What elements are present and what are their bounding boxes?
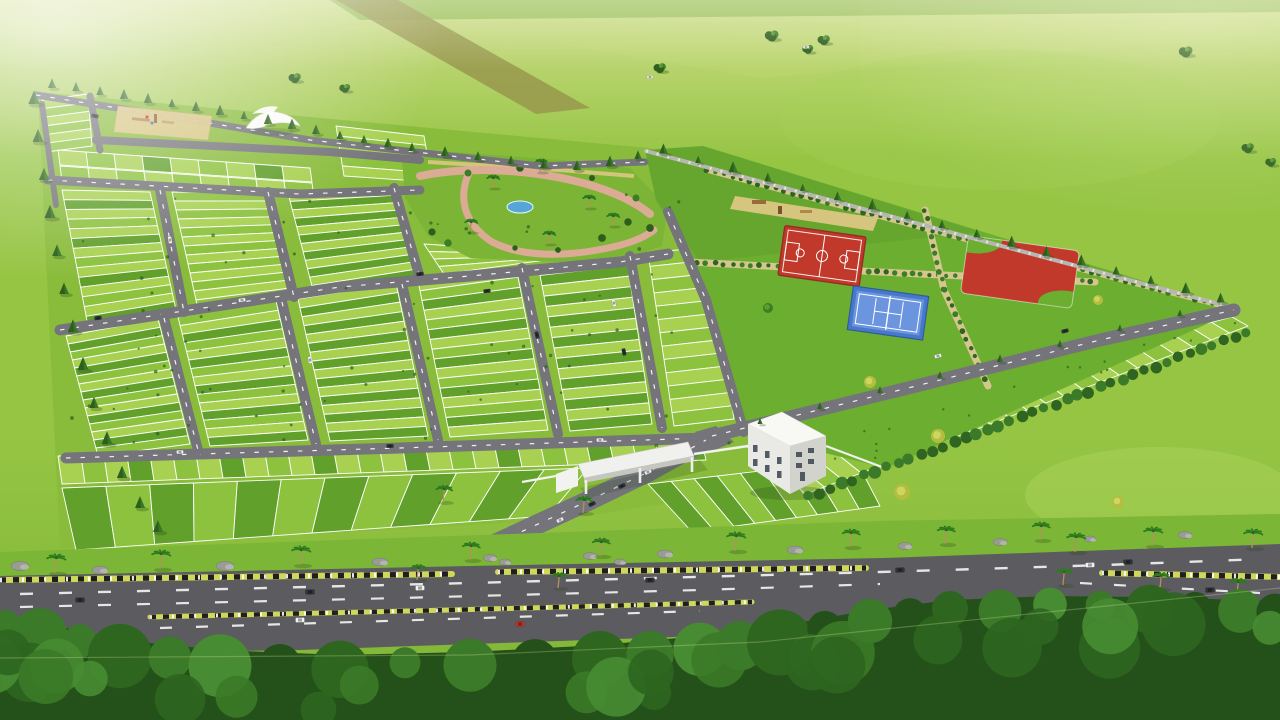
rock <box>225 564 234 569</box>
plot-bush <box>132 441 135 444</box>
palm-shadow <box>465 559 482 563</box>
hedge-bush <box>1071 389 1083 401</box>
plot-bush <box>655 444 659 448</box>
car <box>176 450 183 454</box>
car <box>895 567 904 572</box>
plot-bush <box>531 285 533 287</box>
plot-bush <box>1143 344 1145 346</box>
shrub <box>918 272 923 277</box>
park-shrub <box>646 224 654 232</box>
palm-shadow <box>154 568 172 573</box>
car <box>386 444 393 448</box>
shrub <box>766 263 770 267</box>
hedge-bush <box>1118 375 1129 386</box>
palm-tree <box>492 177 494 179</box>
palm-tree <box>945 529 947 531</box>
rock <box>795 549 803 554</box>
hedge-bush <box>938 443 948 453</box>
park-shrub <box>555 247 561 253</box>
tree-shadow <box>1149 283 1158 286</box>
hedge-bush <box>1105 378 1115 388</box>
hedge-bush <box>992 420 1004 432</box>
shrub <box>942 287 948 293</box>
palm-tree <box>1152 530 1154 532</box>
plot-bush <box>141 309 144 312</box>
shrub <box>910 271 916 277</box>
plot-bush <box>1106 369 1108 371</box>
car <box>483 289 490 293</box>
shrub <box>756 262 762 268</box>
car <box>1085 563 1094 568</box>
shrub <box>721 262 726 267</box>
tree-shadow <box>1119 331 1126 333</box>
hedge-bush <box>1127 369 1138 380</box>
bush <box>764 304 770 310</box>
canopy-tree <box>913 615 962 664</box>
hedge-bush <box>1017 411 1029 423</box>
palm-tree <box>443 488 445 490</box>
plot-bush <box>583 298 586 301</box>
shrub <box>884 269 889 274</box>
palm-shadow <box>940 543 957 547</box>
plot-bush <box>1103 360 1105 362</box>
car <box>75 598 84 603</box>
hedge-bush <box>836 477 849 490</box>
plot-bush <box>299 403 302 406</box>
plot-bush <box>544 365 547 368</box>
palm-shadow <box>554 587 568 591</box>
park-pond <box>507 201 533 213</box>
plot-bush <box>163 365 166 368</box>
rock <box>905 545 912 549</box>
palm-shadow <box>489 188 501 191</box>
plot-bush <box>863 430 865 432</box>
shrub <box>959 328 965 334</box>
canopy-tree <box>982 618 1042 678</box>
plot-bush <box>427 357 430 360</box>
canopy-tree <box>691 632 746 687</box>
hedge-bush <box>1231 332 1242 343</box>
plot-bush <box>324 400 326 402</box>
palm-tree <box>160 553 162 555</box>
park-shrub <box>465 170 472 177</box>
shrub <box>934 260 939 265</box>
plot-bush <box>87 404 91 408</box>
palm-shadow <box>1035 539 1052 543</box>
plot-bush <box>113 408 115 410</box>
plot-bush <box>430 428 432 430</box>
tree-shadow <box>819 409 826 411</box>
plot-bush <box>888 428 890 430</box>
hedge-bush <box>1196 343 1208 355</box>
plot-strip <box>194 481 238 541</box>
rock <box>505 561 511 565</box>
play-equipment <box>778 206 782 214</box>
shrub <box>713 260 718 265</box>
plot-bush <box>413 303 415 305</box>
plot-bush <box>490 343 493 346</box>
palm-shadow <box>537 172 549 175</box>
car <box>94 316 101 321</box>
plot-bush <box>525 230 528 233</box>
car <box>645 578 654 583</box>
hedge-bush <box>1173 351 1184 362</box>
plot-bush <box>968 414 970 416</box>
plot-bush <box>490 281 494 285</box>
shrub <box>953 273 957 277</box>
palm-shadow <box>729 550 747 555</box>
canopy-tree <box>390 647 421 678</box>
hedge-bush <box>916 449 927 460</box>
palm-tree <box>55 557 57 559</box>
bush <box>1114 498 1121 505</box>
park-shrub <box>598 234 606 242</box>
plot-bush <box>138 348 140 350</box>
shrub <box>958 320 963 325</box>
plot-bush <box>1100 371 1102 373</box>
tree-shadow <box>697 163 705 166</box>
plot-bush <box>424 437 427 440</box>
palm-tree <box>612 215 614 217</box>
canopy-tree <box>443 639 496 692</box>
hedge-bush <box>1151 362 1163 374</box>
hedge-bush <box>894 458 904 468</box>
car <box>1205 588 1214 593</box>
plot-bush <box>209 388 212 391</box>
plot-bush <box>187 424 190 427</box>
plot-bush <box>70 416 74 420</box>
tree-shadow <box>939 378 946 380</box>
shrub <box>1087 279 1093 285</box>
rock <box>1000 541 1007 545</box>
plot-bush <box>467 391 469 393</box>
plot-bush <box>670 331 673 334</box>
tree-shadow <box>476 160 486 163</box>
plot-bush <box>665 414 668 417</box>
hedge-bush <box>847 476 857 486</box>
palm-tree <box>1237 581 1239 583</box>
shrub <box>940 277 945 282</box>
tree-shadow <box>509 164 518 167</box>
site-plan-svg <box>0 0 1280 720</box>
shrub <box>731 262 736 267</box>
plot-bush <box>283 365 285 367</box>
tree-shadow <box>879 393 886 395</box>
palm-shadow <box>585 208 597 211</box>
hedge-bush <box>803 491 812 500</box>
car <box>305 590 314 595</box>
plot-bush <box>568 365 571 368</box>
plot-bush <box>479 398 482 401</box>
tree-shadow <box>975 237 984 240</box>
palm-tree <box>583 499 585 501</box>
shrub <box>740 262 745 267</box>
palm-shadow <box>1069 551 1087 556</box>
plot-bush <box>281 389 284 392</box>
hedge-bush <box>902 454 913 465</box>
palm-tree <box>1160 575 1162 577</box>
plot-bush <box>184 340 187 343</box>
plot-bush <box>126 387 128 389</box>
tree-shadow <box>801 191 809 194</box>
tree-shadow <box>1114 274 1123 277</box>
palm-shadow <box>595 555 612 559</box>
plot-bush <box>1079 366 1081 368</box>
hedge-bush <box>949 436 961 448</box>
palm-shadow <box>545 244 557 247</box>
hedge-bush <box>1186 349 1195 358</box>
plot-bush <box>637 247 641 251</box>
shrub <box>973 354 977 358</box>
palm-tree <box>1252 532 1254 534</box>
shrub <box>936 269 942 275</box>
rock <box>380 561 388 566</box>
car <box>515 622 524 627</box>
palm-tree <box>417 567 419 569</box>
basketball-court <box>778 226 866 287</box>
hedge-bush <box>1051 400 1062 411</box>
township-aerial-render: Plotted township site layout 3D aerial r… <box>0 0 1280 720</box>
park-shrub <box>589 175 595 181</box>
plot-bush <box>942 408 944 410</box>
plot-bush <box>156 432 160 436</box>
plot-bush <box>201 391 204 394</box>
hedge-bush <box>868 466 881 479</box>
canopy-tree <box>149 636 192 679</box>
tree-shadow <box>759 424 766 426</box>
bush <box>866 378 873 385</box>
plot-bush <box>1067 366 1069 368</box>
shrub <box>892 270 897 275</box>
canopy-tree <box>511 639 558 686</box>
hedge-bush <box>1082 387 1094 399</box>
play-equipment <box>800 210 812 213</box>
tree-shadow <box>1059 347 1067 349</box>
hedge-bush <box>1139 365 1148 374</box>
tree-shadow <box>998 362 1006 365</box>
shrub <box>946 297 950 301</box>
rock <box>490 557 497 561</box>
palm-shadow <box>609 226 621 229</box>
haze-top-right <box>860 0 1280 220</box>
palm-tree <box>558 575 560 577</box>
plot-bush <box>560 391 563 394</box>
plot-bush <box>1173 337 1175 339</box>
canopy-tree <box>216 676 258 718</box>
shrub <box>874 268 880 274</box>
canopy-tree <box>808 636 865 693</box>
palm-shadow <box>294 564 312 569</box>
plot-bush <box>282 438 285 441</box>
car <box>647 75 653 79</box>
shrub <box>982 376 988 382</box>
plot-bush <box>200 315 203 318</box>
park-shrub <box>633 195 640 202</box>
plot-bush <box>651 273 653 275</box>
shrub <box>748 263 753 268</box>
plot-bush <box>606 408 609 411</box>
plot-bush <box>588 333 591 336</box>
play-equipment <box>752 200 766 204</box>
palm-tree <box>470 221 472 223</box>
plot-bush <box>599 295 601 297</box>
plot-bush <box>669 206 671 208</box>
car <box>1123 560 1132 565</box>
palm-tree <box>850 532 852 534</box>
tree-shadow <box>1179 316 1186 318</box>
palm-tree <box>735 535 737 537</box>
plot-bush <box>654 314 657 317</box>
palm-shadow <box>413 579 427 583</box>
shrub <box>932 251 937 256</box>
shrub <box>902 271 908 277</box>
car <box>415 586 424 591</box>
bush <box>897 487 906 496</box>
plot-bush <box>615 328 619 332</box>
bush <box>1094 296 1100 302</box>
plot-bush <box>468 231 471 234</box>
tree-shadow <box>765 181 775 184</box>
palm-tree <box>600 541 602 543</box>
shrub <box>866 269 872 275</box>
plot-bush <box>350 366 353 369</box>
palm-tree <box>1063 571 1065 573</box>
palm-shadow <box>1146 545 1164 550</box>
tree-shadow <box>835 200 845 203</box>
hedge-bush <box>825 484 835 494</box>
plot-bush <box>364 383 367 386</box>
shrub <box>952 311 958 317</box>
palm-shadow <box>49 572 67 577</box>
hedge-bush <box>1095 381 1106 392</box>
palm-tree <box>588 197 590 199</box>
palm-tree <box>1075 536 1077 538</box>
plot-bush <box>155 335 157 337</box>
plot-bush <box>571 329 574 332</box>
shrub <box>929 234 934 239</box>
palm-tree <box>548 233 550 235</box>
plot-bush <box>199 350 202 353</box>
shrub <box>927 273 931 277</box>
rock <box>665 553 673 558</box>
rock <box>1090 538 1096 542</box>
hedge-bush <box>970 428 982 440</box>
car <box>295 618 304 623</box>
plot-bush <box>156 393 159 396</box>
hedge-bush <box>1027 407 1037 417</box>
hedge-bush <box>927 446 938 457</box>
hedge-bush <box>881 461 891 471</box>
plot-bush <box>834 457 836 459</box>
palm-shadow <box>578 512 594 516</box>
hedge-bush <box>1039 403 1048 412</box>
plot-bush <box>208 308 211 311</box>
rock <box>100 569 108 574</box>
rock <box>20 564 29 569</box>
palm-tree <box>1040 525 1042 527</box>
plot-bush <box>522 345 525 348</box>
palm-shadow <box>845 546 862 550</box>
plot-bush <box>464 227 468 231</box>
plot-bush <box>527 225 530 228</box>
plot-bush <box>516 383 518 385</box>
plot-bush <box>170 369 173 372</box>
shrub <box>963 337 968 342</box>
plot-bush <box>875 443 877 445</box>
plot-bush <box>413 373 416 376</box>
canopy-tree <box>628 650 674 696</box>
rock <box>620 561 626 565</box>
hedge-bush <box>814 489 825 500</box>
plot-bush <box>874 457 876 459</box>
shrub <box>931 244 936 249</box>
plot-strip <box>150 483 194 544</box>
tree-shadow <box>636 159 645 162</box>
plot-bush <box>255 414 258 417</box>
plot-bush <box>727 441 730 444</box>
canopy-tree <box>340 666 379 705</box>
plot-bush <box>402 370 404 372</box>
hedge-bush <box>1004 416 1014 426</box>
palm-shadow <box>1058 584 1074 588</box>
hedge-bush <box>1219 335 1229 345</box>
hedge-bush <box>1162 358 1171 367</box>
park-shrub <box>512 245 517 250</box>
palm-shadow <box>438 501 454 505</box>
tree-shadow <box>940 228 949 231</box>
car <box>596 438 603 442</box>
canopy-tree <box>259 644 301 686</box>
shrub <box>1080 278 1085 283</box>
bush <box>933 431 941 439</box>
park-shrub <box>624 218 631 225</box>
plot-bush <box>508 352 511 355</box>
plot-bush <box>1234 322 1236 324</box>
shrub <box>702 260 708 266</box>
hedge-bush <box>859 470 869 480</box>
plot-bush <box>1013 386 1015 388</box>
shrub <box>969 346 973 350</box>
plot-bush <box>625 193 628 196</box>
plot-bush <box>875 450 877 452</box>
plot-bush <box>549 354 552 357</box>
rock <box>1185 534 1192 538</box>
hedge-bush <box>1207 341 1216 350</box>
palm-tree <box>470 545 472 547</box>
plot-bush <box>403 328 406 331</box>
palm-tree <box>300 549 302 551</box>
plot-bush <box>290 423 293 426</box>
canopy-tree <box>1082 598 1138 654</box>
palm-shadow <box>1246 547 1264 552</box>
shrub <box>950 303 954 307</box>
plot-bush <box>677 200 680 203</box>
plot-bush <box>154 370 158 374</box>
hedge-bush <box>1241 328 1250 337</box>
plot-bush <box>1190 339 1192 341</box>
